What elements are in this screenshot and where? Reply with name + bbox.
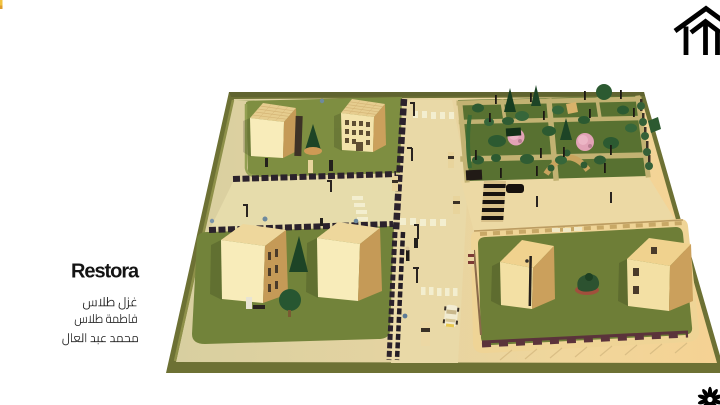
svg-text:Restora: Restora bbox=[71, 261, 140, 283]
